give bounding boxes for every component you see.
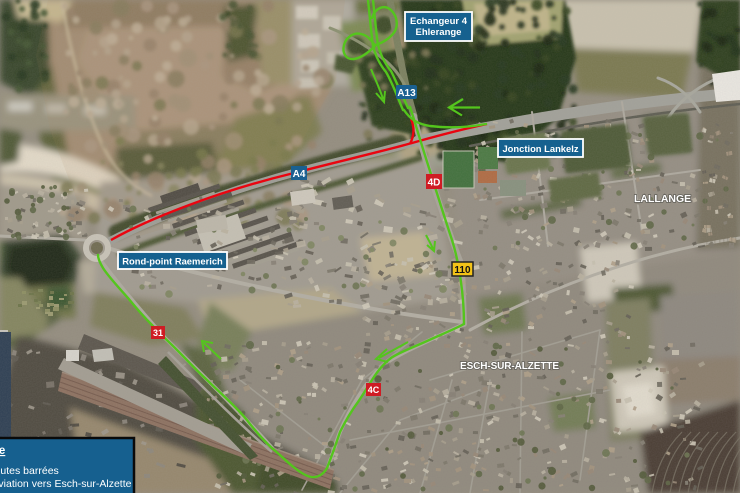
svg-text:Routes barrées: Routes barrées: [0, 465, 59, 477]
svg-text:Rond-point Raemerich: Rond-point Raemerich: [122, 256, 223, 267]
svg-text:A4: A4: [293, 169, 306, 180]
svg-text:A13: A13: [397, 88, 416, 99]
svg-text:Déviation vers Esch-sur-Alzett: Déviation vers Esch-sur-Alzette: [0, 478, 132, 490]
svg-text:Echangeur 4: Echangeur 4: [410, 16, 468, 27]
svg-text:Ehlerange: Ehlerange: [416, 27, 462, 38]
svg-text:110: 110: [454, 265, 471, 276]
svg-text:31: 31: [153, 328, 163, 338]
svg-text:Jonction Lankelz: Jonction Lankelz: [502, 143, 578, 154]
svg-text:4D: 4D: [428, 178, 441, 189]
svg-text:ESCH-SUR-ALZETTE: ESCH-SUR-ALZETTE: [460, 361, 559, 372]
svg-text:LALLANGE: LALLANGE: [634, 193, 691, 205]
svg-text:Légende: Légende: [0, 445, 5, 457]
svg-text:4C: 4C: [368, 385, 380, 395]
